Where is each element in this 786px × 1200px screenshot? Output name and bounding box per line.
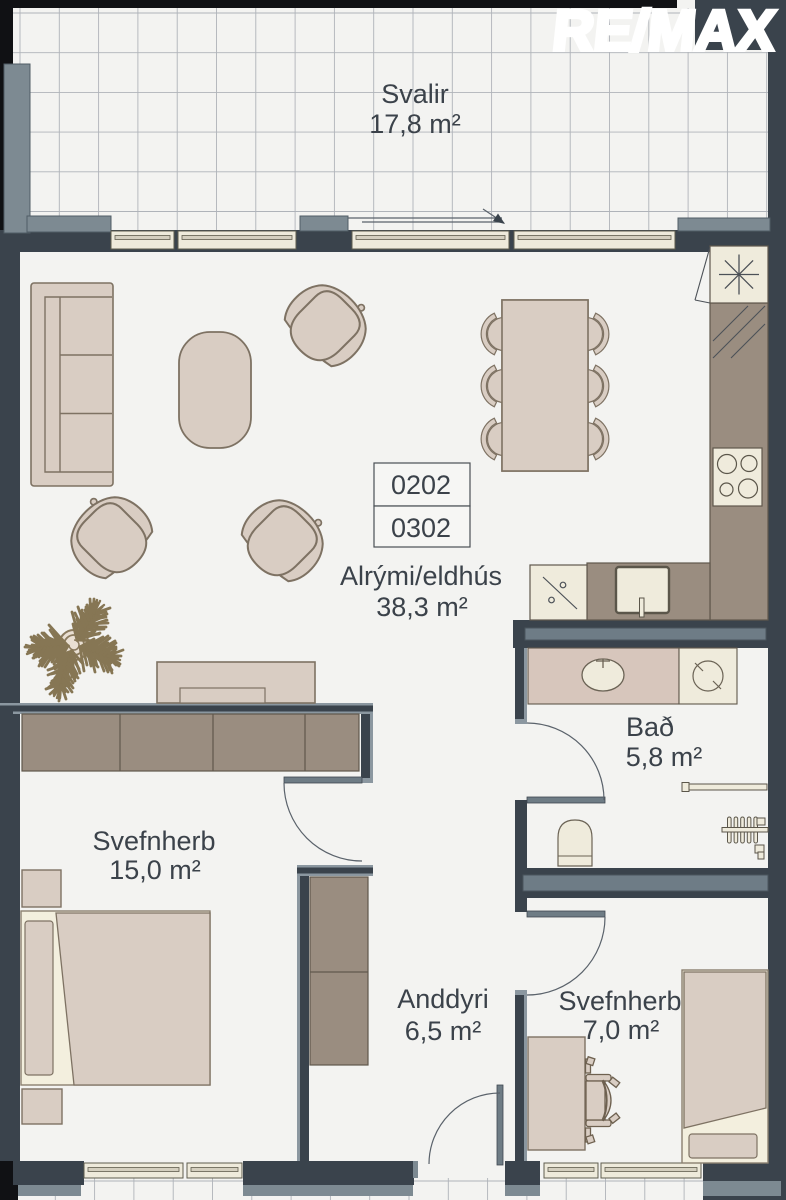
svg-text:Svefnherb: Svefnherb [558, 986, 681, 1016]
svg-text:38,3 m²: 38,3 m² [376, 592, 468, 622]
svg-text:17,8 m²: 17,8 m² [369, 109, 461, 139]
svg-text:6,5 m²: 6,5 m² [405, 1016, 482, 1046]
svg-text:Alrými/eldhús: Alrými/eldhús [340, 561, 502, 591]
svg-text:5,8 m²: 5,8 m² [626, 742, 703, 772]
svg-text:15,0 m²: 15,0 m² [109, 855, 201, 885]
svg-text:RE/MAX: RE/MAX [550, 0, 779, 63]
svg-text:Anddyri: Anddyri [397, 984, 489, 1014]
svg-text:Bað: Bað [626, 712, 674, 742]
svg-text:Svefnherb: Svefnherb [92, 826, 215, 856]
svg-text:0302: 0302 [391, 513, 451, 543]
svg-text:0202: 0202 [391, 470, 451, 500]
svg-text:Svalir: Svalir [381, 79, 449, 109]
svg-text:7,0 m²: 7,0 m² [583, 1015, 660, 1045]
